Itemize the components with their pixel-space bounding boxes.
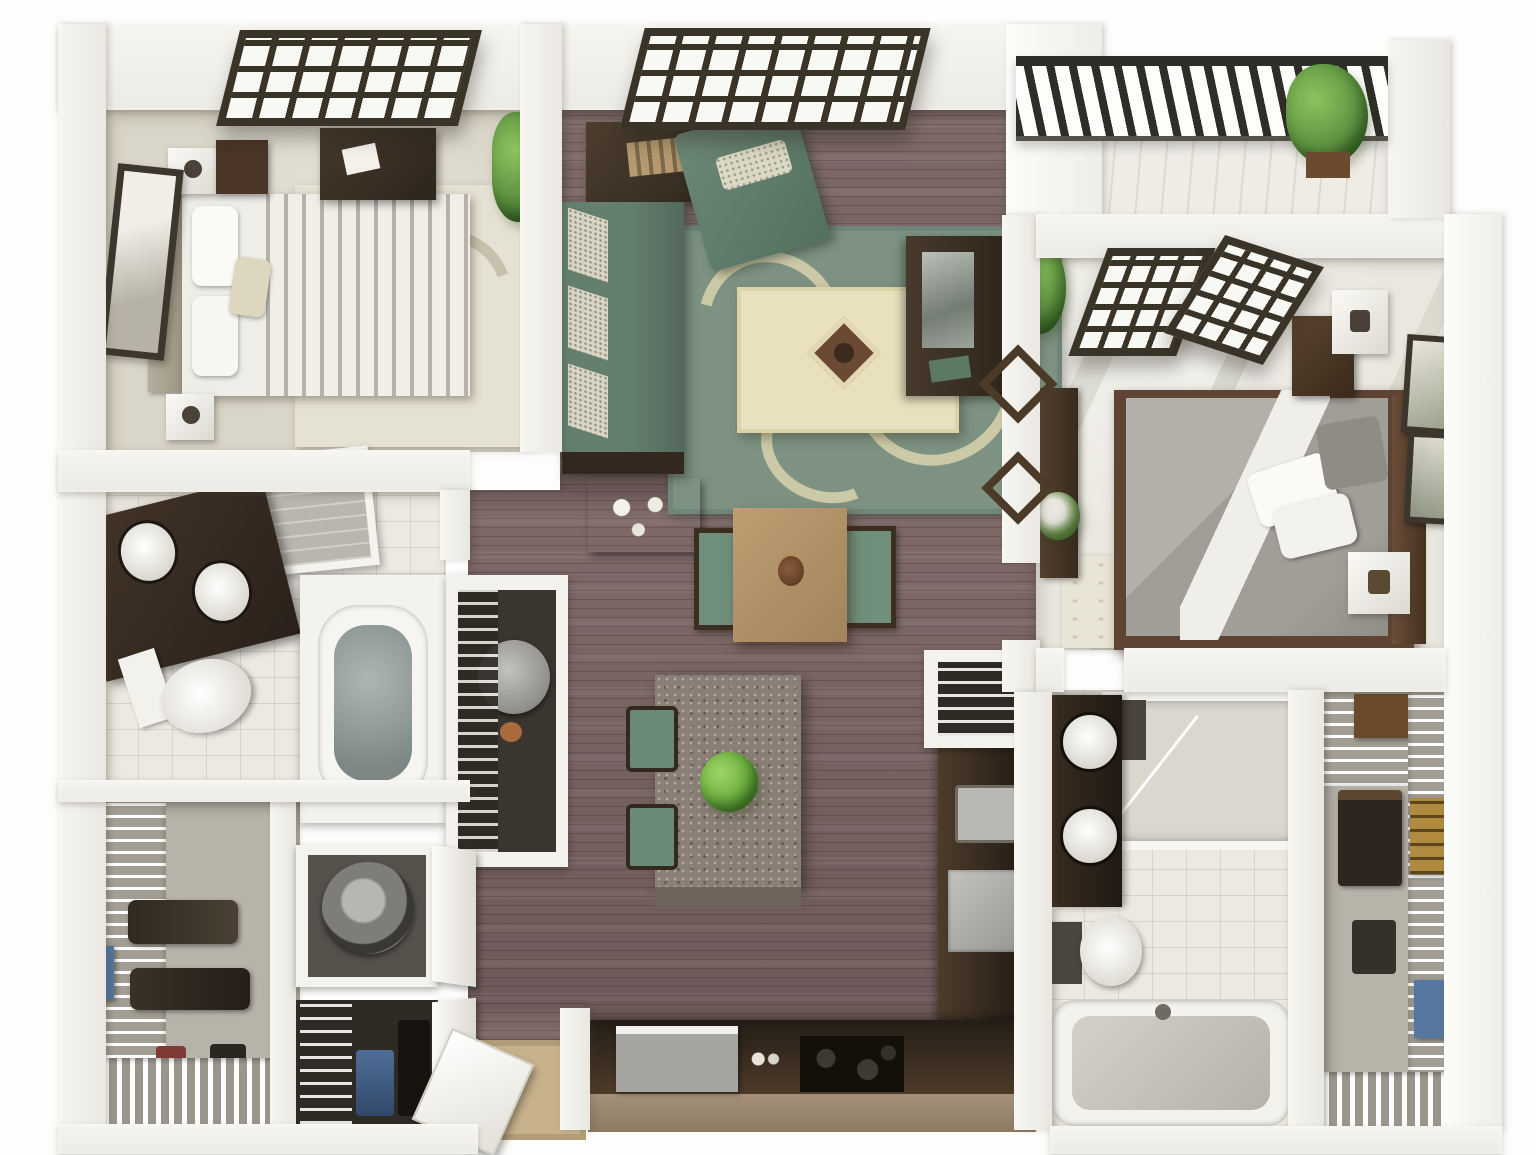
closet2-shoe-rack	[1324, 1072, 1464, 1132]
sofa-cushion-patterned	[568, 364, 608, 439]
closet2-dark-item	[1352, 920, 1396, 974]
kitchen-sink	[955, 785, 1019, 843]
vanity2-sink-round	[1060, 712, 1120, 772]
bedroom2-lamp	[1368, 570, 1390, 594]
divider-hall-kitchen-south	[560, 1008, 590, 1130]
exterior-wall-right	[1444, 214, 1502, 1130]
bedroom1-pillow	[192, 206, 238, 286]
divider-bath1-hall	[440, 490, 470, 560]
bedroom1-window	[216, 30, 482, 126]
closet1-hanging-clothes	[130, 968, 250, 1010]
divider-living-bedroom2-stub	[1002, 640, 1040, 692]
living-room-window	[619, 28, 930, 130]
kitchen-counter-front	[588, 1094, 1036, 1132]
balcony-plant-pot	[1306, 152, 1350, 178]
bedroom2-south-wall-left	[1036, 648, 1064, 692]
bathroom2-toilet-bowl	[1080, 916, 1142, 986]
divider-kitchen-bath2	[1014, 692, 1052, 1130]
ottoman-tray-decor	[834, 343, 854, 363]
vanity2-sink-round	[1060, 806, 1120, 866]
bedroom2-gray-cushion	[1315, 415, 1389, 491]
dining-chair-right	[840, 526, 896, 628]
closet-divider-wall	[270, 800, 296, 1130]
closet1-hanging-clothes	[128, 900, 238, 944]
divider-bedroom1-living	[520, 24, 562, 452]
hanging-jeans	[356, 1050, 394, 1116]
bedroom1-wood-nightstand	[216, 140, 268, 194]
bedroom1-duvet-striped	[252, 194, 470, 396]
exterior-wall-left	[58, 24, 106, 1126]
bedroom1-lamp	[184, 160, 202, 178]
bar-stool	[626, 804, 678, 870]
tub-faucet	[1155, 1004, 1171, 1020]
linen-wire-shelf	[300, 1004, 352, 1124]
divider-bath2-closet2	[1288, 690, 1324, 1130]
bedroom2-south-wall	[1124, 648, 1446, 692]
counter-items	[748, 1046, 782, 1072]
sofa-cushion-patterned	[568, 286, 608, 361]
exterior-wall-bottom-right	[1050, 1126, 1502, 1154]
closet-bifold-door	[432, 845, 476, 987]
bathtub-basin	[1072, 1016, 1270, 1110]
sofa-base-trim	[562, 452, 684, 474]
closet2-hanging-clothes	[1338, 790, 1402, 886]
heater-valve-copper	[500, 722, 522, 742]
refrigerator-gray	[616, 1026, 738, 1092]
bathroom2-toilet-tank	[1052, 922, 1082, 984]
bar-stool	[626, 706, 678, 772]
dresser-lamp-core	[1350, 310, 1370, 332]
bedroom1-lamp	[182, 406, 200, 424]
living-side-table	[588, 478, 700, 552]
utility-wire-shelf	[458, 590, 498, 852]
closet2-brown-box	[1354, 694, 1412, 738]
bedroom1-south-wall	[58, 450, 470, 492]
balcony-plant	[1286, 64, 1368, 164]
exterior-wall-bottom-left	[58, 1124, 478, 1154]
tub-water	[334, 625, 412, 781]
cooktop-black	[800, 1036, 904, 1092]
media-console-glass	[922, 252, 974, 348]
sofa-cushion-patterned	[568, 208, 608, 283]
divider-bath1-closets	[58, 780, 470, 802]
balcony-right-wall	[1388, 40, 1450, 218]
washer-round-door	[322, 862, 414, 954]
island-plant	[700, 752, 758, 812]
floor-plan	[0, 0, 1536, 1155]
table-centerpiece	[778, 556, 804, 586]
island-front-edge	[655, 887, 801, 909]
